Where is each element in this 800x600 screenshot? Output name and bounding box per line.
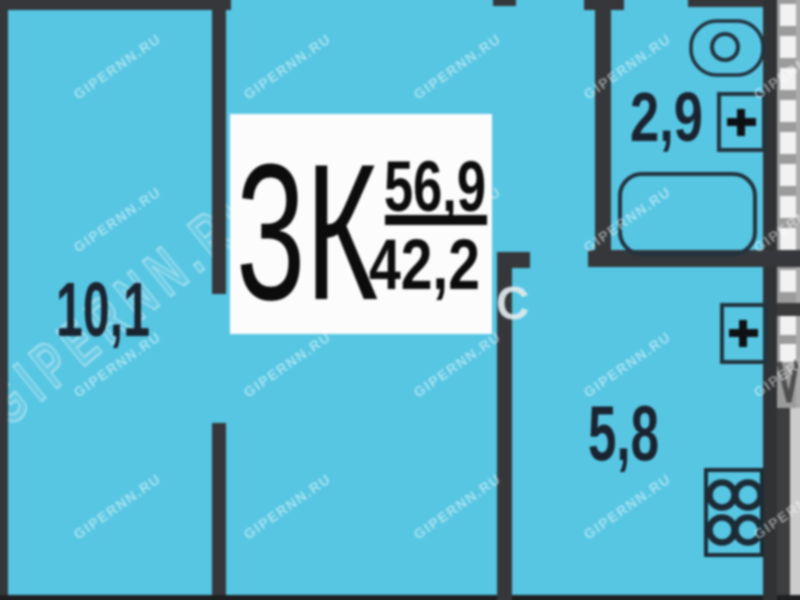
svg-text:3К: 3К — [236, 124, 378, 341]
svg-text:10,1: 10,1 — [56, 267, 150, 353]
svg-text:2,9: 2,9 — [630, 78, 703, 156]
svg-text:42,2: 42,2 — [369, 226, 480, 305]
svg-text:5,8: 5,8 — [588, 389, 659, 477]
svg-text:С: С — [496, 277, 529, 329]
